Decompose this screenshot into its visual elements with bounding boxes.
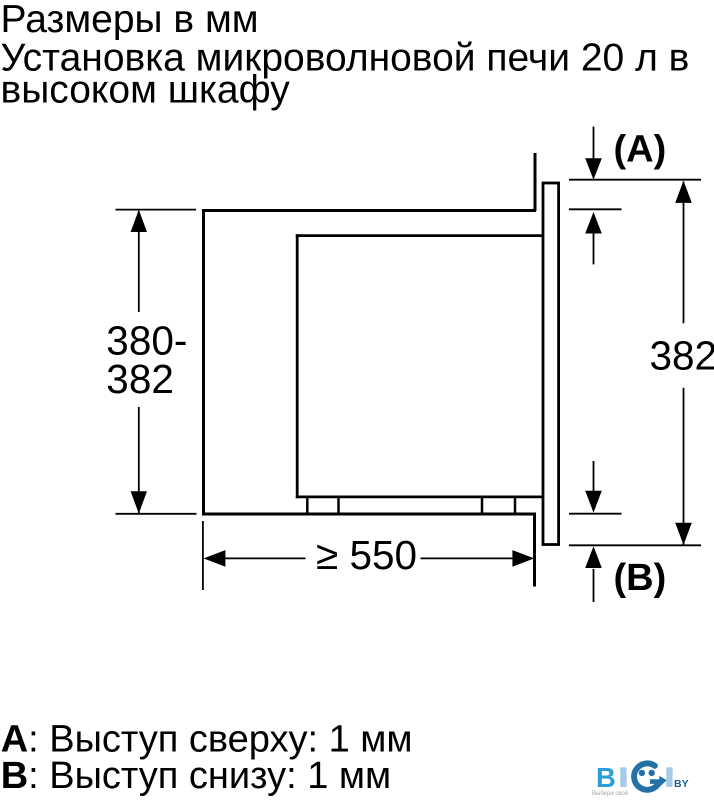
svg-text:(B): (B) — [614, 557, 667, 599]
svg-text:382: 382 — [106, 356, 174, 402]
svg-text:382: 382 — [650, 333, 714, 379]
svg-text:Выбери своё: Выбери своё — [592, 791, 629, 797]
svg-text:BY: BY — [674, 778, 689, 790]
svg-text:Размеры в мм: Размеры в мм — [1, 0, 259, 41]
svg-text:B: B — [596, 762, 616, 793]
svg-text:≥ 550: ≥ 550 — [316, 532, 417, 578]
svg-text:(A): (A) — [614, 129, 667, 171]
svg-text:высоком шкафу: высоком шкафу — [1, 68, 291, 111]
svg-text:B: Выступ снизу: 1 мм: B: Выступ снизу: 1 мм — [1, 755, 391, 797]
